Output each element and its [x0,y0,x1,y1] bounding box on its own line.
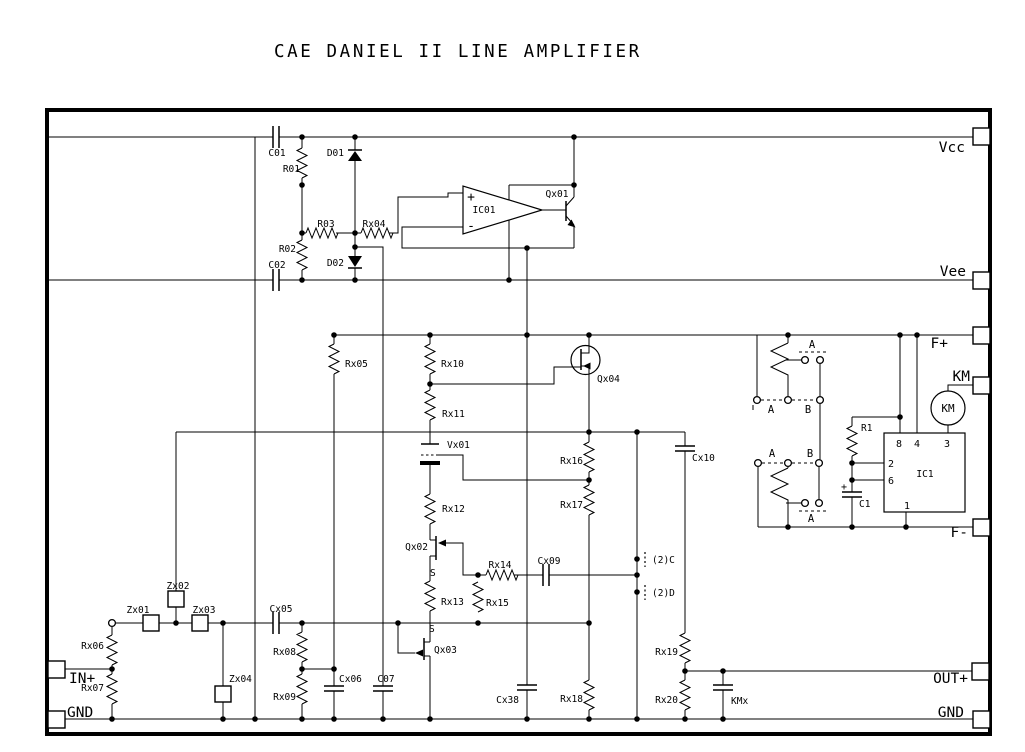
terminal-gnd-left [48,711,65,728]
ic1-pin-2: 2 [888,459,894,470]
contact-lower-a-bottom: A [808,513,815,525]
transistor-qx03-label: Qx03 [434,645,457,656]
schematic-canvas: CAE DANIEL II LINE AMPLIFIER [0,0,1025,752]
res-r1-label: R1 [861,423,873,434]
terminal-vcc-label: Vcc [939,140,965,156]
contact-lower-b-top: B [807,448,813,460]
terminal-in-plus [48,661,65,678]
resistor-symbols [107,148,857,710]
ic1-pin-4: 4 [914,439,920,450]
res-rx11-label: Rx11 [442,409,465,420]
res-rx10-label: Rx10 [441,359,464,370]
res-rx15-label: Rx15 [486,598,509,609]
cap-c02-label: C02 [268,260,285,271]
cap-kmx-label: KMx [731,696,748,707]
connector-2c-label: (2)C [652,555,675,566]
terminal-km [973,377,990,394]
jumper-zx03: Zx03 [192,605,215,631]
terminal-gnd-right-label: GND [938,705,964,721]
contact-circles [109,357,824,627]
cap-cx06-label: Cx06 [339,674,362,685]
ic1-pin-3: 3 [944,439,950,450]
res-rx07-label: Rx07 [81,683,104,694]
transistor-qx02: Qx02 S [405,536,446,579]
cap-c1-label: C1 [859,499,871,510]
ic1-pin-8: 8 [896,439,902,450]
res-rx06-label: Rx06 [81,641,104,652]
terminal-f-minus [973,519,990,536]
junction-dots [109,134,920,722]
ic1-label: IC1 [916,469,933,480]
transistor-qx01: Qx01 [546,189,576,228]
terminal-gnd-right [973,711,990,728]
res-r01-label: R01 [283,164,300,175]
relay-contacts-upper: A A B [753,335,826,416]
ic1-pin-6: 6 [888,476,894,487]
contact-upper-b-bottom: B [805,404,811,416]
res-rx12-label: Rx12 [442,504,465,515]
schematic-page: CAE DANIEL II LINE AMPLIFIER [0,0,1025,752]
qx02-source-label: S [430,568,436,579]
jumper-zx03-label: Zx03 [193,605,216,616]
terminal-vee [973,272,990,289]
opamp-label: IC01 [473,205,496,216]
terminal-km-label: KM [953,369,971,385]
terminal-out-plus [972,663,989,680]
jumper-zx01-label: Zx01 [127,605,150,616]
tube-vx01-label: Vx01 [447,440,470,451]
res-rx13-label: Rx13 [441,597,464,608]
page-title: CAE DANIEL II LINE AMPLIFIER [274,42,642,62]
terminal-vcc [973,128,990,145]
channel2-connectors: (2)C (2)D [645,552,675,600]
transistor-qx04: Qx04 [571,346,620,386]
res-rx08-label: Rx08 [273,647,296,658]
ic1-pin-1: 1 [904,501,910,512]
res-rx16-label: Rx16 [560,456,583,467]
qx03-source-label: S [429,624,435,635]
cap-c1-polarity: + [841,482,847,493]
diode-d01-label: D01 [327,148,344,159]
terminal-gnd-left-label: GND [67,705,93,721]
relay-contacts-lower: A B A [762,448,826,527]
transistor-qx03: Qx03 S [415,624,457,660]
res-r02-label: R02 [279,244,296,255]
res-rx20-label: Rx20 [655,695,678,706]
diode-d01 [348,150,362,161]
transistor-qx01-label: Qx01 [546,189,569,200]
ic1-chip: IC1 8 4 3 2 6 1 [884,433,965,512]
terminal-f-plus-label: F+ [931,336,949,352]
tube-vx01 [420,444,440,463]
terminal-out-plus-label: OUT+ [933,671,968,687]
wires [47,136,973,719]
connector-2d-label: (2)D [652,588,675,599]
relay-coil-label: KM [941,402,955,415]
jumper-zx01: Zx01 [127,605,159,631]
contact-upper-a-top: A [809,339,816,351]
jumper-zx02: Zx02 [167,581,190,607]
transistor-qx04-label: Qx04 [597,374,620,385]
cap-c07-label: C07 [377,674,394,685]
res-rx05-label: Rx05 [345,359,368,370]
contact-upper-a-bottom: A [768,404,775,416]
diode-d02-label: D02 [327,258,344,269]
res-rx14-label: Rx14 [489,560,512,571]
terminal-vee-label: Vee [940,264,966,280]
jumper-zx04-label: Zx04 [229,674,252,685]
res-rx04-label: Rx04 [363,219,386,230]
contact-lower-a-top: A [769,448,776,460]
jumper-zx02-label: Zx02 [167,581,190,592]
cap-cx05-label: Cx05 [270,604,293,615]
terminal-f-plus [973,327,990,344]
res-rx19-label: Rx19 [655,647,678,658]
jumper-zx04: Zx04 [215,674,252,702]
opamp-minus-sign: - [467,219,475,234]
opamp-plus-sign: + [467,190,475,205]
cap-cx10-label: Cx10 [692,453,715,464]
res-rx17-label: Rx17 [560,500,583,511]
terminal-f-minus-label: F- [951,525,968,541]
res-rx18-label: Rx18 [560,694,583,705]
cap-cx09-label: Cx09 [538,556,561,567]
res-rx09-label: Rx09 [273,692,296,703]
relay-coil-km: KM [931,391,965,425]
cap-c01-label: C01 [268,148,285,159]
transistor-qx02-label: Qx02 [405,542,428,553]
diode-d02 [348,256,362,268]
res-r03-label: R03 [317,219,334,230]
cap-cx38-label: Cx38 [496,695,519,706]
